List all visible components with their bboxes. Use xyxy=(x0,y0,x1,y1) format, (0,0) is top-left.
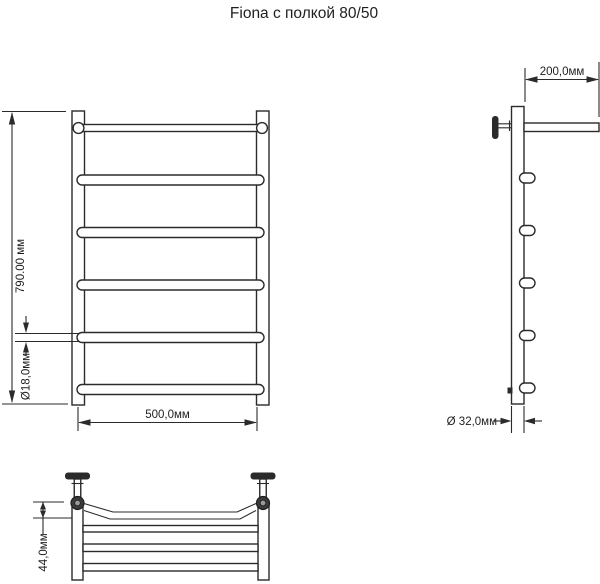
dim-front-rail-diameter-label: Ø18,0мм xyxy=(21,353,33,400)
side-wall-flange xyxy=(493,117,499,139)
top-view xyxy=(66,473,276,580)
dim-side-shelf-depth: 200,0мм xyxy=(525,62,599,117)
top-shelf-rod-3 xyxy=(83,564,258,572)
top-shelf-rod-2 xyxy=(83,544,258,552)
dim-side-post-diameter-label: Ø 32,0мм xyxy=(447,416,497,428)
side-rail-end-5 xyxy=(520,383,536,393)
side-post xyxy=(512,107,525,405)
drawing-canvas: Fiona с полкой 80/50 790.00 мм Ø18,0мм xyxy=(0,0,600,584)
side-shelf xyxy=(524,123,599,132)
front-rail-5 xyxy=(77,385,264,395)
front-left-post xyxy=(72,111,85,405)
dim-front-rail-diameter: Ø18,0мм xyxy=(15,316,80,400)
front-right-post xyxy=(257,111,270,405)
front-top-rail-left-collar xyxy=(73,123,84,134)
front-rail-2 xyxy=(77,228,264,238)
dim-front-width-label: 500,0мм xyxy=(145,409,190,421)
front-view xyxy=(72,111,269,405)
top-left-stem xyxy=(74,479,81,498)
top-front-rod-upper xyxy=(84,504,256,513)
front-rail-3 xyxy=(77,280,264,290)
top-left-flange xyxy=(66,473,90,479)
top-right-stem xyxy=(260,479,267,498)
dim-top-shelf-offset: 44,0мм xyxy=(33,502,72,572)
top-right-post xyxy=(258,502,269,580)
dim-front-height-label: 790.00 мм xyxy=(15,239,27,293)
drawing-title: Fiona с полкой 80/50 xyxy=(230,5,379,22)
side-view xyxy=(493,107,600,405)
side-rail-end-1 xyxy=(520,173,536,183)
technical-drawing: Fiona с полкой 80/50 790.00 мм Ø18,0мм xyxy=(0,0,600,584)
top-left-post xyxy=(72,502,83,580)
dim-side-shelf-depth-label: 200,0мм xyxy=(540,66,585,78)
side-weld-mark xyxy=(508,388,512,393)
dim-front-width: 500,0мм xyxy=(78,407,257,431)
front-rail-1 xyxy=(77,175,264,185)
dim-front-height: 790.00 мм xyxy=(2,112,68,405)
top-shelf-rod-1 xyxy=(83,526,258,533)
front-rail-4 xyxy=(77,333,264,343)
side-rail-end-4 xyxy=(520,331,536,341)
side-rail-end-3 xyxy=(520,278,536,288)
front-top-rail xyxy=(83,125,258,132)
side-rail-end-2 xyxy=(520,226,536,236)
top-right-flange xyxy=(251,473,275,479)
front-top-rail-right-collar xyxy=(257,123,268,134)
dim-top-shelf-offset-label: 44,0мм xyxy=(38,533,50,571)
dim-side-post-diameter: Ø 32,0мм xyxy=(447,406,542,433)
